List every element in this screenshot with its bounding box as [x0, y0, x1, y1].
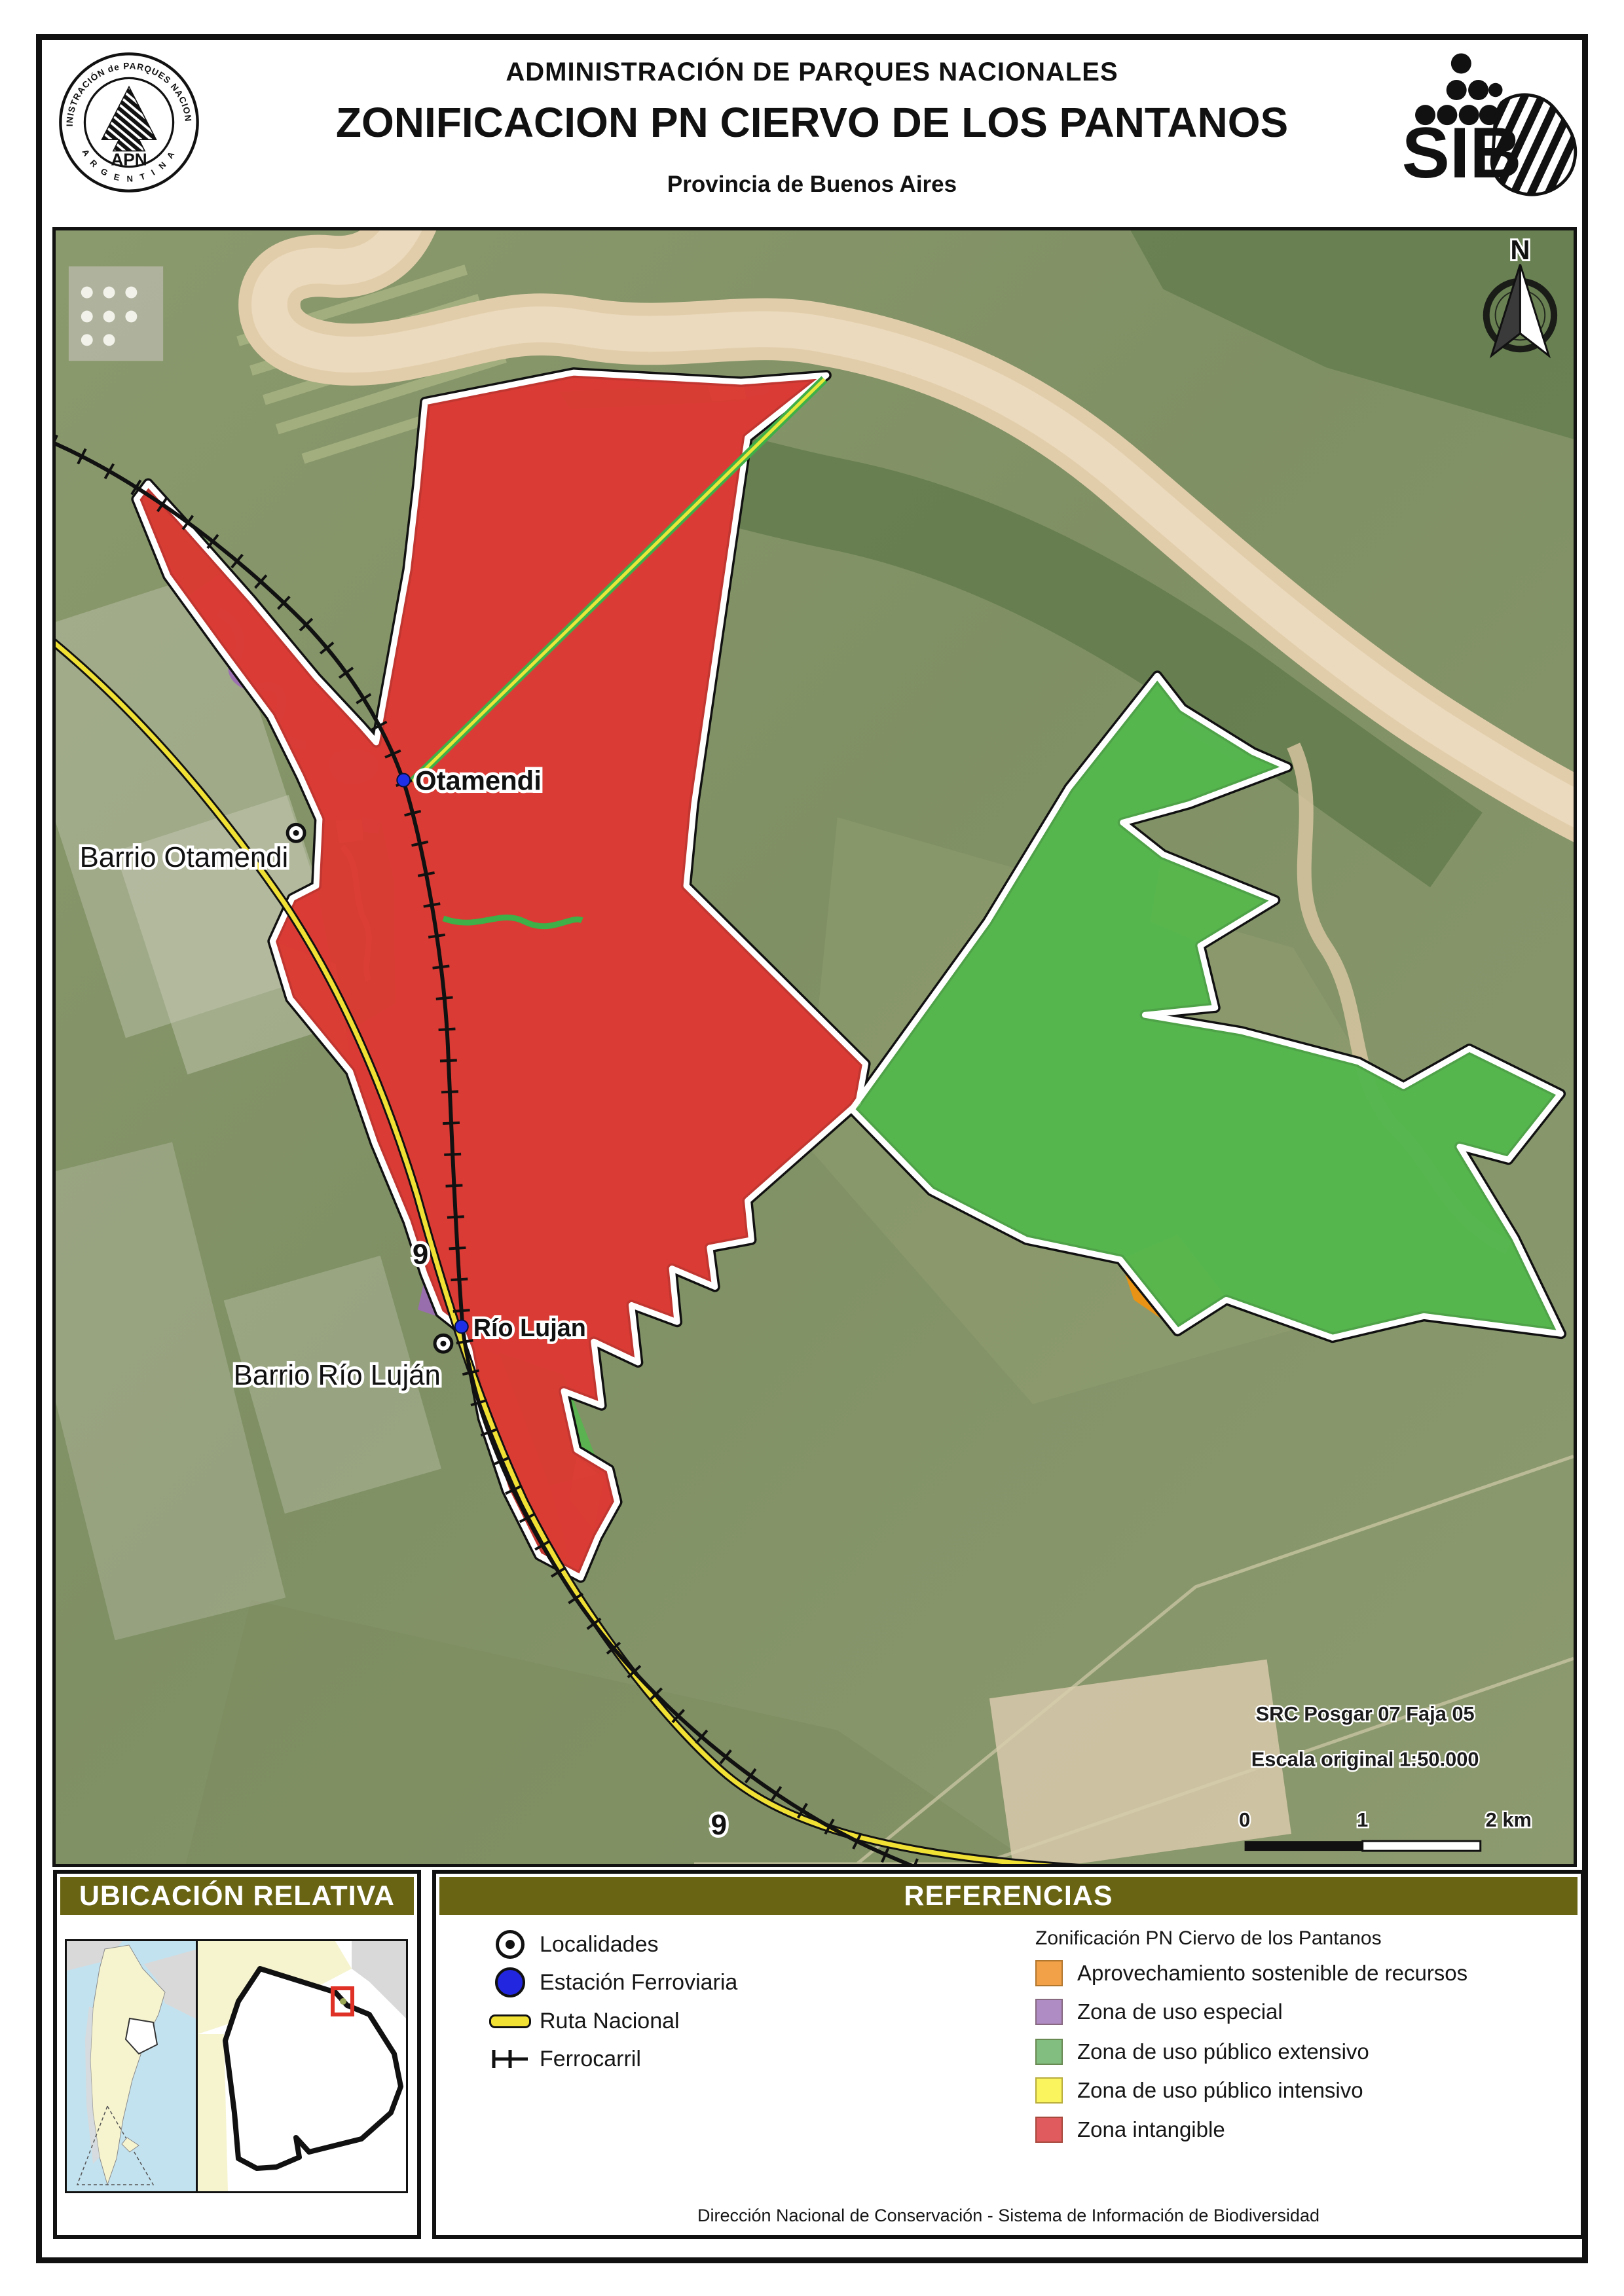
north-label: N: [1510, 234, 1530, 265]
sib-acronym: SIB: [1402, 113, 1522, 193]
route-shield-north: 9: [413, 1239, 428, 1271]
legend-row-estacion: Estación Ferroviaria: [487, 1967, 737, 1998]
swatch-aprovechamiento: [1035, 1960, 1063, 1986]
apn-acronym: APN: [111, 149, 147, 169]
zonification-label: Zona intangible: [1077, 2117, 1225, 2142]
location-panel: UBICACIÓN RELATIVA: [53, 1870, 421, 2239]
swatch-uso-especial: [1035, 1999, 1063, 2025]
zonification-row: Zona de uso público intensivo: [1035, 2077, 1363, 2104]
label-barrio-otamendi: Barrio Otamendi: [80, 841, 289, 873]
scalebar-0: 0: [1239, 1808, 1250, 1831]
route-shield-south: 9: [711, 1809, 727, 1841]
argentina-map-icon: [67, 1941, 198, 2191]
apn-logo: ADMINISTRACIÓN de PARQUES NACIONALES A R…: [58, 51, 200, 194]
argentina-inset-map: [65, 1939, 200, 2193]
scalebar-1: 1: [1357, 1808, 1368, 1831]
railway-icon: [487, 2049, 533, 2069]
crs-note: SRC Posgar 07 Faja 05: [1256, 1702, 1475, 1725]
swatch-uso-publico-extensivo: [1035, 2039, 1063, 2065]
zonification-label: Aprovechamiento sostenible de recursos: [1077, 1961, 1467, 1986]
swatch-uso-publico-intensivo: [1035, 2077, 1063, 2104]
buenos-aires-inset-map: [196, 1939, 408, 2193]
scale-note: Escala original 1:50.000: [1251, 1748, 1479, 1771]
station-icon: [487, 1967, 533, 1997]
station-marker-otamendi: [397, 774, 410, 787]
references-panel: REFERENCIAS Localidades Estación Ferrovi…: [432, 1870, 1585, 2239]
zonification-row: Zona de uso público extensivo: [1035, 2038, 1369, 2066]
label-rio-lujan-station: Río Lujan: [473, 1315, 586, 1342]
org-title: ADMINISTRACIÓN DE PARQUES NACIONALES: [0, 58, 1624, 87]
zonification-label: Zona de uso público extensivo: [1077, 2039, 1369, 2064]
station-marker-rio-lujan: [455, 1320, 468, 1333]
zonification-row: Zona de uso especial: [1035, 1998, 1283, 2026]
zonification-label: Zona de uso especial: [1077, 1999, 1283, 2024]
zonification-title: Zonificación PN Ciervo de los Pantanos: [1035, 1927, 1382, 1950]
legend-label: Estación Ferroviaria: [540, 1970, 737, 1995]
label-otamendi-station: Otamendi: [415, 765, 542, 796]
legend-label: Localidades: [540, 1932, 658, 1958]
page-subtitle: Provincia de Buenos Aires: [0, 172, 1624, 198]
scalebar-2km: 2 km: [1486, 1808, 1532, 1831]
legend-row-ruta: Ruta Nacional: [487, 2005, 680, 2037]
sib-logo-icon: SIB: [1399, 43, 1586, 206]
sib-logo: SIB: [1399, 43, 1586, 206]
legend-label: Ruta Nacional: [540, 2009, 680, 2034]
locality-icon: [487, 1930, 533, 1959]
page-title: ZONIFICACION PN CIERVO DE LOS PANTANOS: [0, 98, 1624, 147]
location-panel-title: UBICACIÓN RELATIVA: [60, 1877, 414, 1915]
label-barrio-rio-lujan: Barrio Río Luján: [234, 1359, 441, 1391]
credits-footer: Dirección Nacional de Conservación - Sis…: [436, 2206, 1581, 2226]
apn-seal-icon: ADMINISTRACIÓN de PARQUES NACIONALES A R…: [58, 51, 200, 194]
map-canvas: Otamendi Barrio Otamendi Río Lujan Barri…: [56, 230, 1574, 1864]
map-viewport: Otamendi Barrio Otamendi Río Lujan Barri…: [52, 227, 1577, 1867]
references-panel-title: REFERENCIAS: [439, 1877, 1578, 1915]
swatch-intangible: [1035, 2117, 1063, 2143]
legend-row-ferrocarril: Ferrocarril: [487, 2043, 641, 2075]
zonification-row: Zona intangible: [1035, 2116, 1225, 2143]
buenos-aires-map-icon: [198, 1941, 406, 2191]
zonification-label: Zona de uso público intensivo: [1077, 2078, 1363, 2103]
legend-row-localidades: Localidades: [487, 1929, 658, 1960]
route-icon: [487, 2014, 533, 2028]
zonification-row: Aprovechamiento sostenible de recursos: [1035, 1959, 1467, 1987]
legend-label: Ferrocarril: [540, 2047, 641, 2072]
